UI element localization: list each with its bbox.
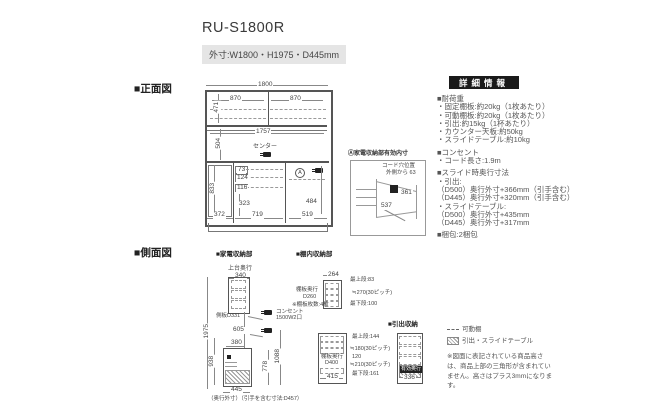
sketch-block bbox=[227, 355, 231, 359]
legend-movable-label: 可動棚 bbox=[462, 326, 482, 333]
shelf-dash-line bbox=[270, 118, 326, 119]
dim-drawer-width: 336 bbox=[403, 375, 416, 382]
legend: 可動棚 引出・スライドテーブル bbox=[447, 326, 577, 345]
dim-mid-width: 719 bbox=[251, 212, 264, 219]
dim-right-width: 519 bbox=[301, 212, 314, 219]
dim-top-row: 最上段:83 bbox=[350, 278, 374, 284]
details-panel-body: ■耐荷重 ・固定棚板:約20kg（1枚あたり） ・可動棚板:約20kg（1枚あた… bbox=[437, 95, 663, 244]
dim-pitch1: ≒180(30ピッチ) bbox=[350, 347, 390, 353]
shelf-dash-line bbox=[246, 177, 283, 178]
shelf-dash-line bbox=[289, 179, 325, 180]
drawer-inner-label: 有効奥行 bbox=[400, 366, 422, 373]
details-line: ・コード長さ:1.9m bbox=[437, 157, 663, 165]
sketch-line bbox=[356, 189, 376, 190]
cord-note-line2: 外側から 63 bbox=[386, 171, 416, 177]
dim-bottom-depth: 445 bbox=[230, 387, 243, 394]
dim-right-height: 1088 bbox=[275, 348, 282, 364]
front-view-label: ■正面図 bbox=[134, 84, 172, 95]
dim-shelf-upper-width: 264 bbox=[327, 272, 340, 279]
shelf-upper-drawing: 264 棚板奥行 D260 ※棚板枚数:4枚 最上段:83 ≒270(30ピッチ… bbox=[290, 262, 425, 324]
shelf-outline bbox=[231, 300, 246, 309]
shelf-outline bbox=[231, 280, 246, 289]
dim-shelf-lower-width: 415 bbox=[326, 374, 339, 381]
dim-left-height: 833 bbox=[210, 182, 217, 195]
outer-dimensions-badge: 外寸:W1800・H1975・D445mm bbox=[202, 45, 346, 64]
drawer-outline bbox=[399, 336, 421, 345]
divider-line bbox=[285, 162, 286, 223]
details-packing-block: ■梱包:2梱包 bbox=[437, 231, 663, 239]
shelf-depth-label-line2: D400 bbox=[325, 361, 338, 367]
product-title: RU-S1800R bbox=[202, 20, 285, 36]
drawer-storage-drawing: ■引出収納 有効奥行 336 bbox=[388, 320, 448, 392]
dim-inset-width: 361 bbox=[400, 190, 413, 197]
slide-table-area bbox=[225, 370, 250, 384]
drawer-outline bbox=[399, 356, 421, 365]
dim-right-height: 484 bbox=[305, 199, 318, 206]
dim-total-width: 1800 bbox=[257, 82, 273, 89]
bottom-note: （奥行外寸）（引手を含む寸法:D457） bbox=[208, 397, 302, 403]
legend-slide-label: 引出・スライドテーブル bbox=[462, 338, 533, 345]
details-slide-block: ■スライド時奥行寸法 ・引出: （D500）奥行外寸+366mm（引手含む） （… bbox=[437, 169, 663, 227]
dim-pitch2: ≒210(30ピッチ) bbox=[350, 363, 390, 369]
details-line: ・スライドテーブル:約10kg bbox=[437, 136, 663, 144]
hatch-swatch bbox=[447, 337, 459, 345]
sketch-line bbox=[416, 185, 417, 219]
legend-slide-row: 引出・スライドテーブル bbox=[447, 337, 552, 346]
cord-hole-marker bbox=[390, 185, 398, 193]
shelf-depth-label: 側板D331 bbox=[216, 314, 240, 320]
dim-shelf-left: 870 bbox=[229, 96, 242, 103]
dim-inset-depth: 537 bbox=[380, 203, 393, 210]
dim-open: 323 bbox=[238, 201, 251, 208]
dim-bottom-row: 最下段:100 bbox=[350, 302, 377, 308]
outlet-icon bbox=[263, 152, 271, 157]
dim-upper-height: 471 bbox=[214, 101, 221, 114]
dim-mid-row: 120 bbox=[352, 355, 361, 361]
shelf-dash-line bbox=[246, 187, 283, 188]
marker-a-icon: A bbox=[295, 168, 305, 178]
dim-drawer1: 73 bbox=[237, 167, 246, 174]
divider-line bbox=[268, 92, 269, 125]
dim-bottom-row: 最下段:161 bbox=[352, 372, 379, 378]
dim-top-row: 最上段:144 bbox=[352, 335, 379, 341]
dim-inner-height: 778 bbox=[263, 360, 270, 373]
dim-gap: 605 bbox=[232, 327, 245, 334]
details-outlet-block: ■コンセント ・コード長さ:1.9m bbox=[437, 149, 663, 166]
details-heading: ■スライド時奥行寸法 bbox=[437, 169, 663, 177]
shelf-count-note: ※棚板枚数:4枚 bbox=[292, 303, 329, 309]
dim-drawer2: 124 bbox=[236, 175, 249, 182]
dim-left-width: 372 bbox=[213, 212, 226, 219]
dim-pitch: ≒270(30ピッチ) bbox=[352, 291, 392, 297]
spec-sheet: RU-S1800R 外寸:W1800・H1975・D445mm ■正面図 ■側面… bbox=[0, 0, 664, 410]
dim-shelf-right: 870 bbox=[289, 96, 302, 103]
footnote: ※図面に表記されている商品高さは、商品上部の三角形が含まれていません。高さはプラ… bbox=[447, 352, 555, 391]
sketch-line bbox=[356, 197, 376, 198]
dashed-line-swatch bbox=[447, 329, 459, 330]
shelf-dash-line bbox=[270, 109, 326, 110]
dim-lower-height: 938 bbox=[209, 355, 216, 368]
details-line: （D445）奥行外寸+317mm bbox=[437, 219, 663, 227]
sketch-line bbox=[376, 179, 377, 217]
lower-cabinet-top bbox=[205, 161, 329, 163]
details-panel-header: 詳細情報 bbox=[449, 76, 519, 89]
appliance-inset-title: Ⓐ家電収納部有効内寸 bbox=[348, 151, 408, 157]
front-view-drawing: 1800 870 870 471 1757 504 センター 833 372 7… bbox=[205, 82, 333, 234]
shelf-depth-label-line2: D260 bbox=[303, 295, 316, 301]
shelf-outline bbox=[231, 290, 246, 299]
details-load-block: ■耐荷重 ・固定棚板:約20kg（1枚あたり） ・可動棚板:約20kg（1枚あた… bbox=[437, 95, 663, 145]
drawer-outline bbox=[399, 346, 421, 355]
center-label: センター bbox=[253, 144, 277, 150]
leader-line bbox=[248, 316, 263, 320]
dim-counter-width: 1757 bbox=[255, 129, 271, 136]
outlet-icon bbox=[264, 310, 272, 315]
appliance-inset-drawing: Ⓐ家電収納部有効内寸 コード穴位置 外側から 63 361 537 bbox=[348, 151, 426, 236]
dim-drawer3: 116 bbox=[236, 185, 248, 192]
shelf-depth-label-line1: 棚板奥行 bbox=[296, 288, 318, 294]
sketch-line bbox=[225, 362, 237, 363]
cord-note-line1: コード穴位置 bbox=[382, 164, 415, 170]
dim-line bbox=[321, 166, 322, 214]
dim-total-height: 1975 bbox=[204, 323, 211, 339]
shelf-dash-line bbox=[246, 169, 283, 170]
sketch-line bbox=[356, 205, 376, 206]
drawer-storage-label: ■引出収納 bbox=[388, 322, 418, 329]
details-heading: ■梱包:2梱包 bbox=[437, 231, 663, 239]
sketch-line bbox=[225, 366, 237, 367]
dim-line bbox=[226, 346, 244, 347]
leader-line bbox=[250, 334, 263, 337]
plinth-outline bbox=[208, 223, 328, 232]
side-view-label: ■側面図 bbox=[134, 248, 172, 259]
divider-line bbox=[233, 162, 234, 223]
outlet-icon bbox=[264, 328, 272, 333]
dim-counter-height: 504 bbox=[216, 137, 223, 150]
legend-movable-row: 可動棚 bbox=[447, 326, 577, 334]
